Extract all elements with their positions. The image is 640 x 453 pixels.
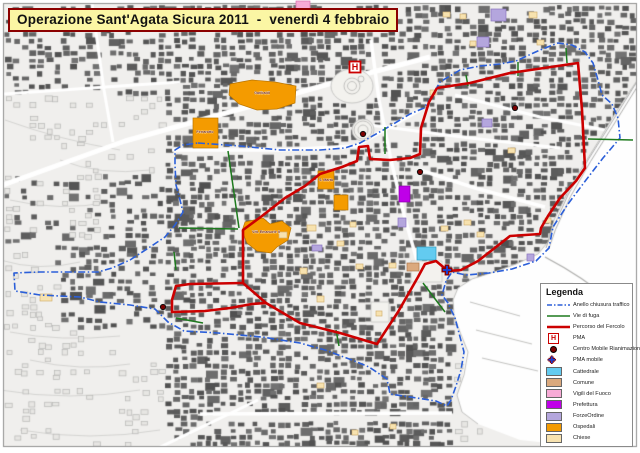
legend-item: Percorso del Fercolo	[546, 321, 628, 332]
legend-swatch-ospedali	[546, 423, 571, 432]
route-via-di-fuga	[176, 318, 203, 323]
route-via-di-fuga	[423, 283, 445, 312]
legend-item-label: Cattedrale	[573, 369, 599, 375]
area-label: Vitt. Emanuele II	[252, 230, 280, 234]
area-label: Ferrarotto	[196, 130, 214, 134]
route-via-di-fuga	[174, 252, 176, 270]
legend-item-label: ForzeOrdine	[573, 413, 604, 419]
pma-marker: H	[350, 62, 361, 73]
route-anello-chiusura-traffico	[14, 43, 620, 406]
area-chiese	[350, 222, 356, 227]
legend-item-label: Comune	[573, 380, 594, 386]
pma-mobile-icon: ✚	[546, 356, 571, 365]
legend-panel: Legenda Anello chiusura trafficoVie di f…	[540, 283, 633, 447]
area-forze_ordine	[527, 254, 534, 261]
legend-swatch-vigili_fuoco	[546, 389, 571, 398]
legend-item: Vie di fuga	[546, 310, 628, 321]
area-chiese	[477, 232, 484, 237]
area-forze_ordine	[482, 119, 492, 127]
legend-item-label: Vie di fuga	[573, 313, 599, 319]
route-via-di-fuga	[588, 139, 633, 140]
legend-item-label: Anello chiusura traffico	[573, 302, 630, 308]
area-chiese	[300, 268, 307, 274]
route-via-di-fuga	[566, 48, 567, 63]
area-forze_ordine	[398, 218, 406, 227]
centro-mobile-rianimazione-marker	[417, 169, 422, 174]
centro-mobile-rianimazione-marker	[360, 131, 365, 136]
route-percorso-fercolo-ovest	[172, 283, 266, 312]
legend-item: Ospedali	[546, 422, 628, 433]
area-chiese	[376, 311, 382, 316]
area-forze_ordine	[477, 37, 489, 47]
legend-title: Legenda	[546, 287, 628, 297]
area-chiese	[443, 12, 450, 17]
legend-item-label: Vigili del Fuoco	[573, 391, 611, 397]
legend-item-label: Percorso del Fercolo	[573, 324, 625, 330]
route-via-di-fuga	[179, 228, 238, 229]
centro-mobile-icon	[546, 346, 571, 353]
area-chiese	[337, 241, 344, 246]
area-forze_ordine	[491, 9, 506, 21]
area-chiese	[317, 383, 324, 388]
legend-line-sample-percorso	[546, 323, 571, 331]
legend-item: Cattedrale	[546, 366, 628, 377]
area-chiese	[356, 264, 363, 269]
area-chiese	[470, 41, 476, 46]
area-chiese	[352, 430, 358, 435]
area-ospedali	[334, 195, 348, 210]
centro-mobile-rianimazione-marker	[160, 304, 165, 309]
area-chiese	[279, 232, 287, 238]
area-comune	[407, 263, 419, 271]
area-forze_ordine	[312, 245, 322, 251]
legend-swatch-chiese	[546, 434, 571, 443]
area-chiese	[460, 14, 466, 19]
route-percorso-fercolo	[243, 63, 585, 344]
area-chiese	[464, 220, 471, 225]
area-chiese	[441, 226, 448, 231]
legend-line-sample-anello	[546, 301, 571, 309]
area-ospedali	[229, 80, 296, 110]
legend-item: Anello chiusura traffico	[546, 299, 628, 310]
legend-swatch-forze_ordine	[546, 412, 571, 421]
legend-swatch-comune	[546, 378, 571, 387]
legend-item: Centro Mobile Rianimazione	[546, 344, 628, 355]
legend-item: HPMA	[546, 332, 628, 343]
legend-item-label: PMA	[573, 335, 585, 341]
area-chiese	[508, 148, 515, 153]
legend-item: Chiese	[546, 433, 628, 444]
map-title: Operazione Sant'Agata Sicura 2011 - vene…	[8, 8, 398, 32]
legend-item-label: Chiese	[573, 435, 590, 441]
area-chiese	[389, 263, 396, 268]
legend-item-label: Prefettura	[573, 402, 598, 408]
area-prefettura	[399, 186, 410, 202]
area-label: Garibaldi	[254, 91, 270, 95]
legend-swatch-prefettura	[546, 400, 571, 409]
centro-mobile-rianimazione-marker	[512, 105, 517, 110]
area-chiese	[390, 424, 396, 429]
legend-item-label: Ospedali	[573, 424, 595, 430]
area-chiese	[317, 296, 324, 302]
legend-line-sample-vie_di_fuga	[546, 312, 571, 320]
area-chiese	[537, 40, 544, 45]
legend-item: ✚PMA mobile	[546, 355, 628, 366]
legend-item-label: PMA mobile	[573, 357, 603, 363]
legend-item-label: Centro Mobile Rianimazione	[573, 346, 640, 352]
route-via-di-fuga	[228, 151, 239, 228]
legend-item: Prefettura	[546, 399, 628, 410]
legend-item: Vigili del Fuoco	[546, 388, 628, 399]
area-cattedrale	[417, 247, 436, 260]
legend-item: Comune	[546, 377, 628, 388]
svg-text:H: H	[352, 62, 359, 72]
pma-icon: H	[546, 333, 571, 344]
area-chiese	[307, 225, 316, 231]
legend-item: ForzeOrdine	[546, 411, 628, 422]
area-chiese	[529, 12, 537, 18]
area-label: S. Marta	[319, 178, 334, 182]
legend-swatch-cattedrale	[546, 367, 571, 376]
city-map: HGaribaldiFerrarottoS. MartaVitt. Emanue…	[0, 0, 640, 453]
